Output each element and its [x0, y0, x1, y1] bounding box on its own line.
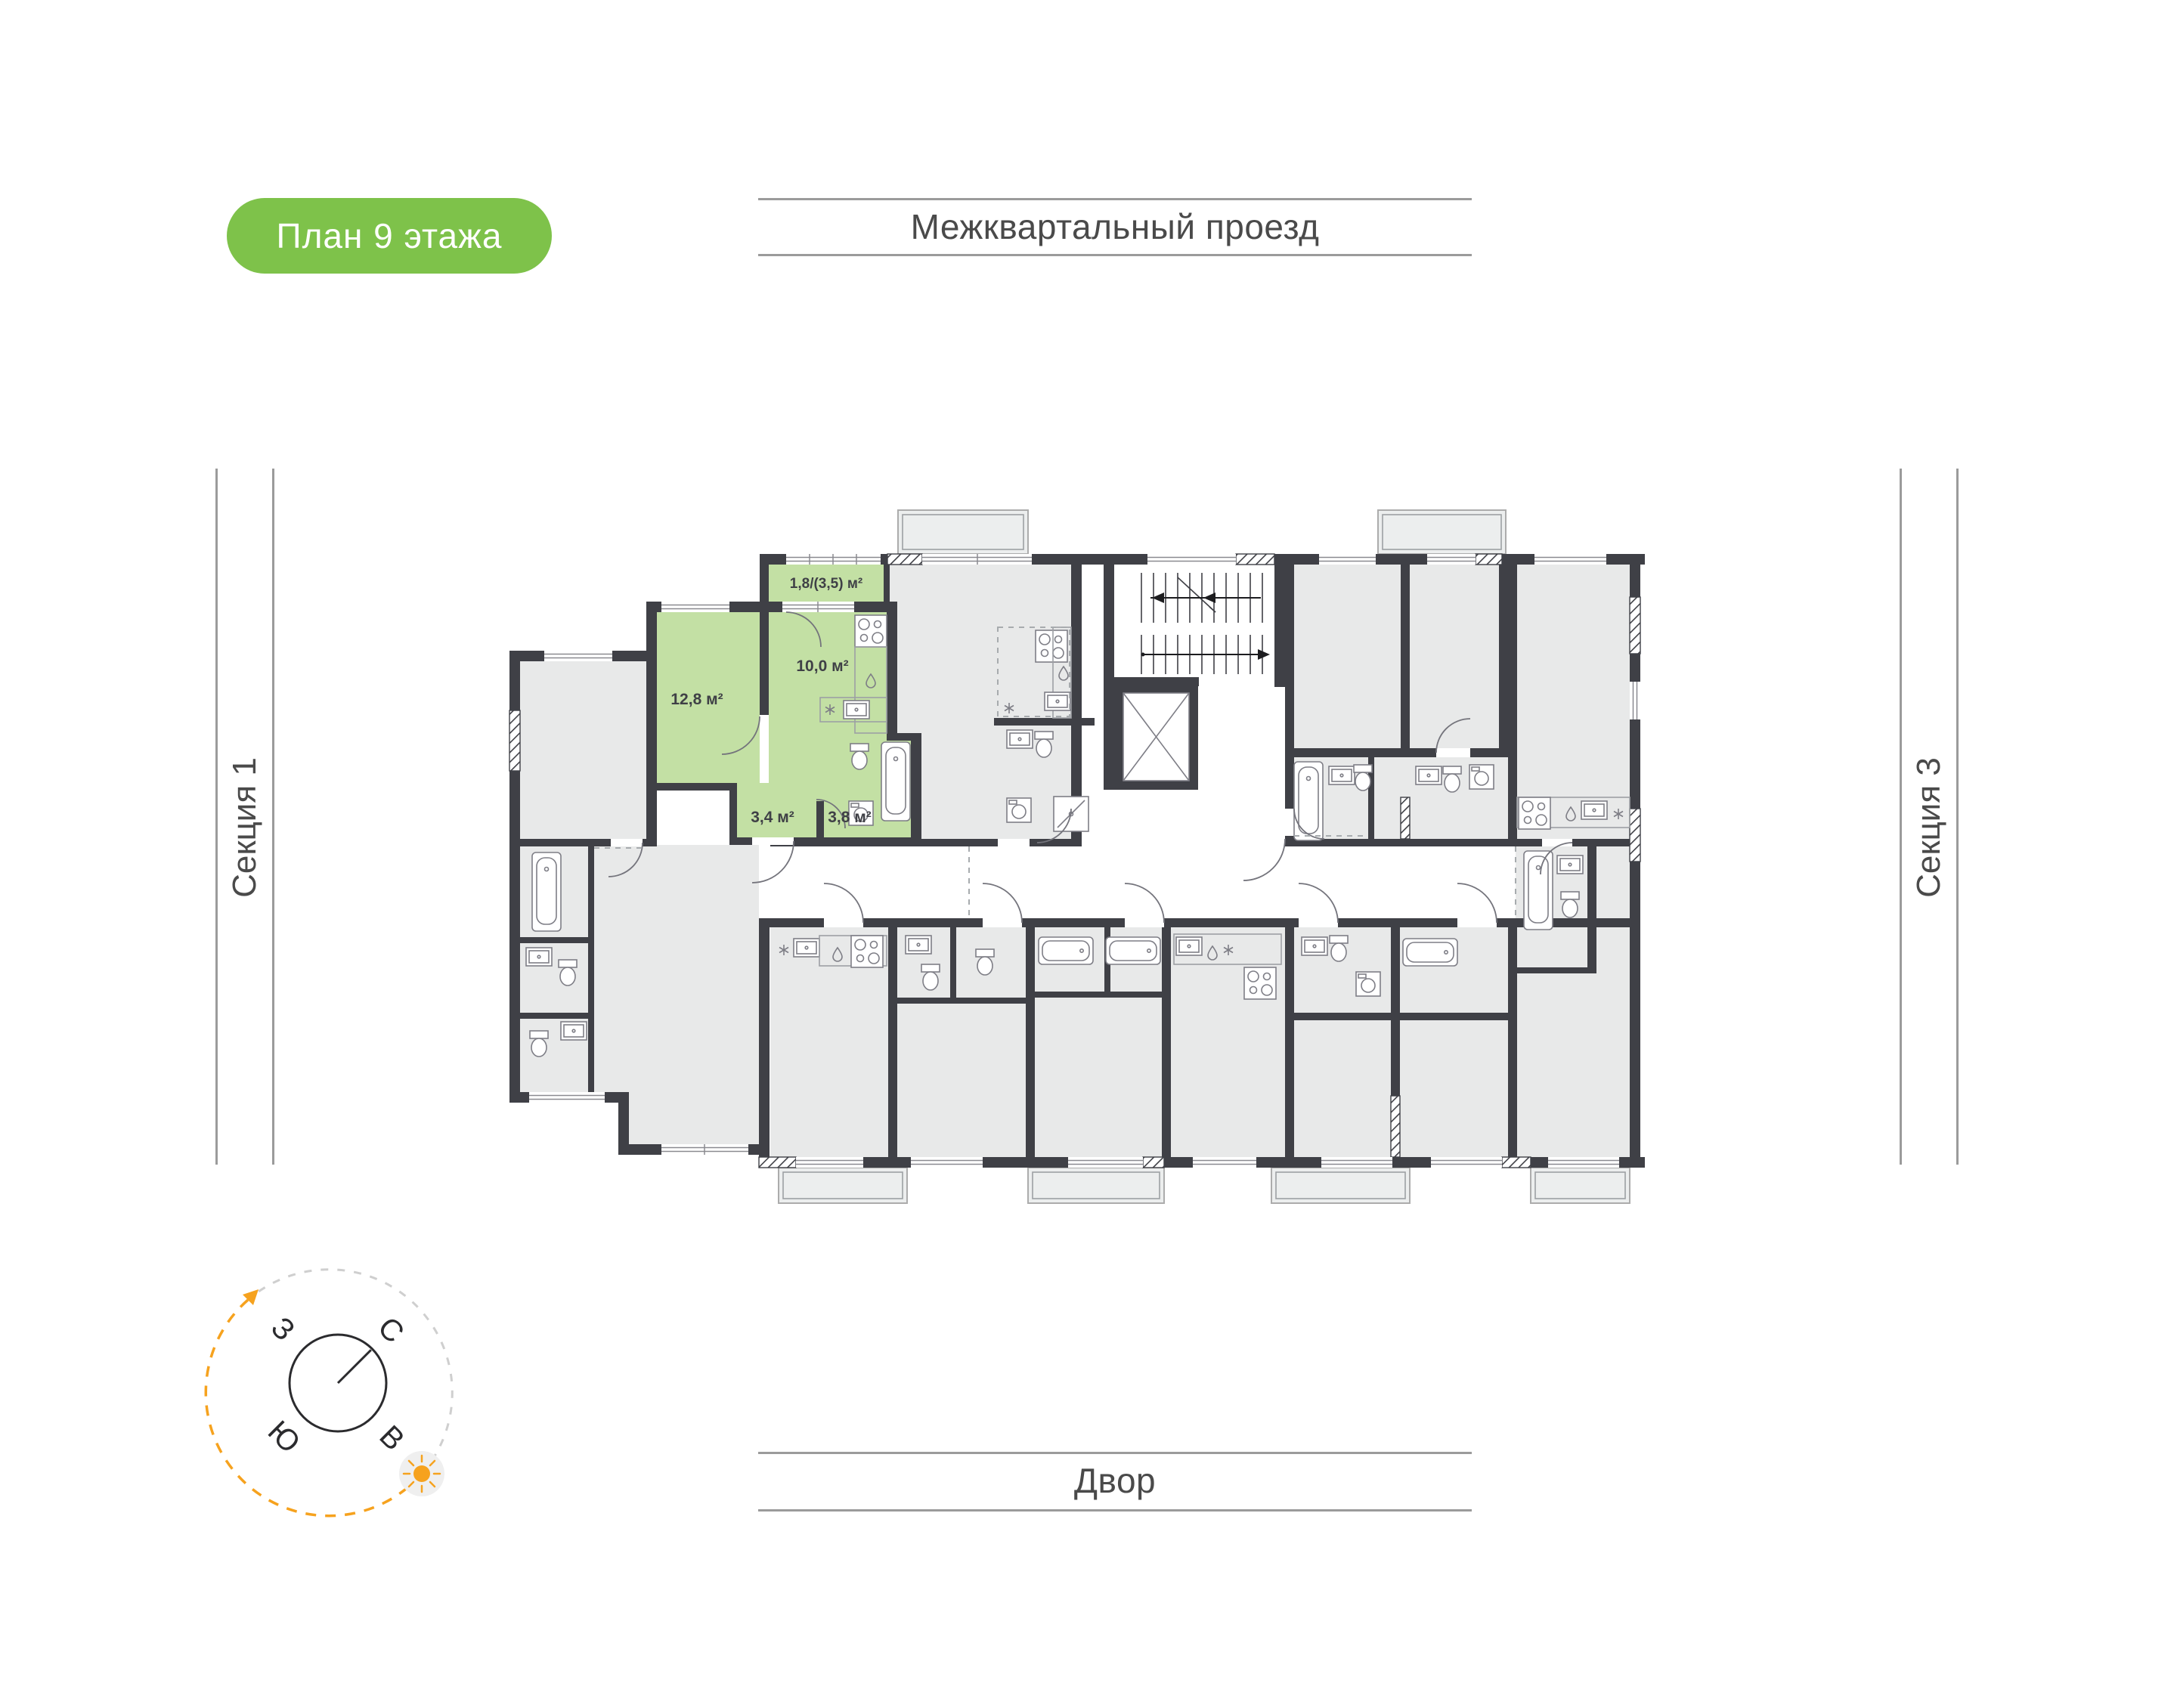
- stove-icon: [851, 936, 883, 967]
- bathtub-icon: [1524, 851, 1553, 930]
- sink-icon: [526, 948, 552, 966]
- toilet-icon: [1035, 732, 1053, 757]
- area-label-living-room: 12,8 м²: [670, 691, 723, 708]
- compass-south-label: Ю: [262, 1415, 307, 1460]
- section-1-line-left: [215, 469, 218, 1165]
- sink-icon: [561, 1022, 587, 1040]
- sink-icon: [1176, 937, 1202, 955]
- sink-icon: [844, 701, 869, 719]
- floor-plan-badge: План 9 этажа: [227, 198, 552, 274]
- floor-plan: 1,8/(3,5) м² 12,8 м² 10,0 м² 3,4 м² 3,8 …: [499, 484, 1678, 1209]
- stove-icon: [1519, 797, 1550, 829]
- sink-icon: [1302, 937, 1327, 955]
- section-3-line-left: [1900, 469, 1902, 1165]
- toilet-icon: [1561, 892, 1579, 917]
- bathtub-icon: [1403, 939, 1457, 966]
- top-street-label: Межквартальный проезд: [758, 200, 1472, 254]
- room-right-wing: [1294, 565, 1630, 846]
- toilet-icon: [559, 960, 577, 986]
- section-1-label: Секция 1: [222, 714, 268, 941]
- toilet-icon: [1330, 936, 1348, 961]
- compass-north-label: С: [371, 1310, 410, 1350]
- area-label-bathroom: 3,8 м²: [828, 809, 872, 826]
- elevator: [1123, 693, 1189, 781]
- balcony-bottom-4: [1531, 1168, 1630, 1203]
- washer-icon: [1469, 765, 1494, 789]
- floor-plan-badge-label: План 9 этажа: [277, 215, 503, 256]
- elevator-hall: [1114, 790, 1285, 846]
- balcony-top-1: [898, 510, 1028, 554]
- bathtub-icon: [1106, 937, 1160, 964]
- bathtub-icon: [1039, 937, 1093, 964]
- sink-icon: [794, 939, 819, 957]
- toilet-icon: [850, 744, 869, 769]
- toilet-icon: [530, 1031, 548, 1057]
- bottom-street-label: Двор: [758, 1453, 1472, 1508]
- balcony-top-2: [1378, 510, 1506, 554]
- top-street-line-lower: [758, 254, 1472, 256]
- compass-east-label: В: [373, 1419, 410, 1457]
- section-3-line-right: [1956, 469, 1959, 1165]
- section-1-line-right: [272, 469, 274, 1165]
- sun-icon: [399, 1451, 444, 1496]
- bottom-street-line-lower: [758, 1509, 1472, 1512]
- area-label-balcony: 1,8/(3,5) м²: [790, 576, 862, 592]
- compass: С В Ю З: [189, 1239, 491, 1557]
- room-bottom-wing: [770, 927, 1630, 1157]
- bathtub-icon: [1294, 762, 1323, 840]
- corridor: [770, 846, 1516, 918]
- sink-icon: [1581, 801, 1607, 819]
- area-label-kitchen: 10,0 м²: [796, 658, 848, 675]
- toilet-icon: [1354, 765, 1372, 791]
- sink-icon: [906, 936, 931, 954]
- washer-icon: [1007, 798, 1031, 822]
- area-label-hallway: 3,4 м²: [751, 809, 794, 826]
- balcony-bottom-2: [1028, 1168, 1164, 1203]
- bathtub-icon: [881, 742, 910, 821]
- sink-icon: [1557, 856, 1583, 874]
- stove-icon: [855, 615, 887, 647]
- sink-icon: [1416, 766, 1442, 784]
- toilet-icon: [1443, 766, 1461, 792]
- sink-icon: [1045, 692, 1070, 710]
- section-3-label: Секция 3: [1906, 714, 1952, 941]
- toilet-icon: [976, 949, 994, 975]
- bathtub-icon: [532, 852, 561, 931]
- washer-icon: [1356, 972, 1380, 996]
- balcony-bottom-3: [1271, 1168, 1410, 1203]
- stove-icon: [1036, 630, 1067, 662]
- page: План 9 этажа Межквартальный проезд Двор …: [0, 0, 2177, 1708]
- stove-icon: [1244, 967, 1276, 999]
- compass-west-label: З: [265, 1310, 301, 1347]
- balcony-bottom-1: [779, 1168, 907, 1203]
- toilet-icon: [921, 964, 940, 990]
- sink-icon: [1329, 766, 1355, 784]
- sink-icon: [1007, 730, 1033, 748]
